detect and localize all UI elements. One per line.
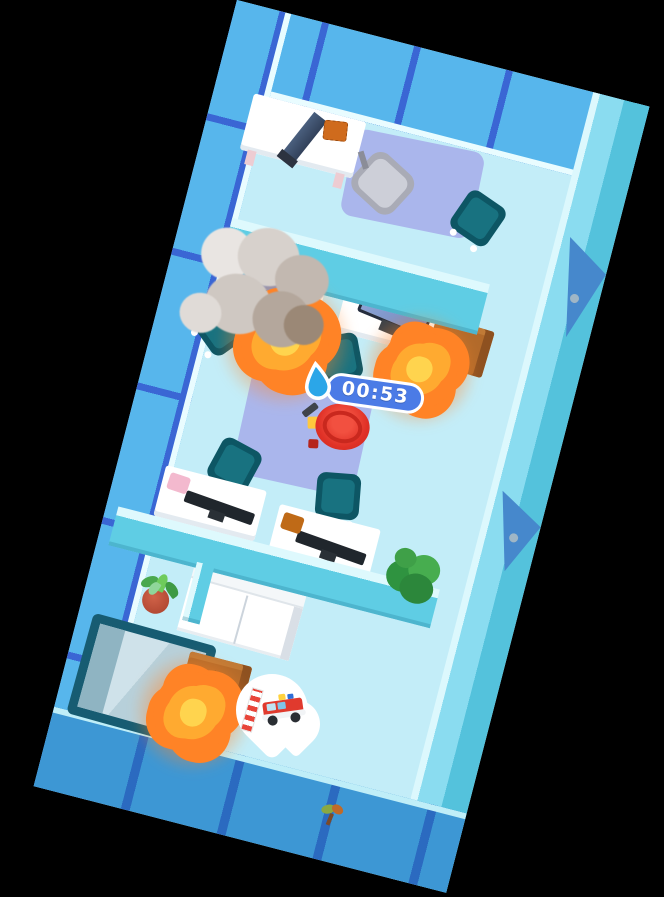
- fire-truck-marker[interactable]: [232, 672, 320, 772]
- monitor: [183, 490, 255, 525]
- water-drop-icon: [297, 358, 338, 405]
- desk-pad: [322, 120, 348, 143]
- fire: [142, 661, 245, 765]
- door-knob-icon: [569, 293, 580, 304]
- building[interactable]: [34, 0, 650, 893]
- boot: [308, 439, 318, 448]
- monitor: [283, 112, 327, 161]
- game-viewport[interactable]: 00:53: [0, 0, 664, 897]
- door-knob-icon: [508, 533, 519, 544]
- fire-truck-icon: [258, 687, 309, 729]
- office-chair: [314, 471, 361, 520]
